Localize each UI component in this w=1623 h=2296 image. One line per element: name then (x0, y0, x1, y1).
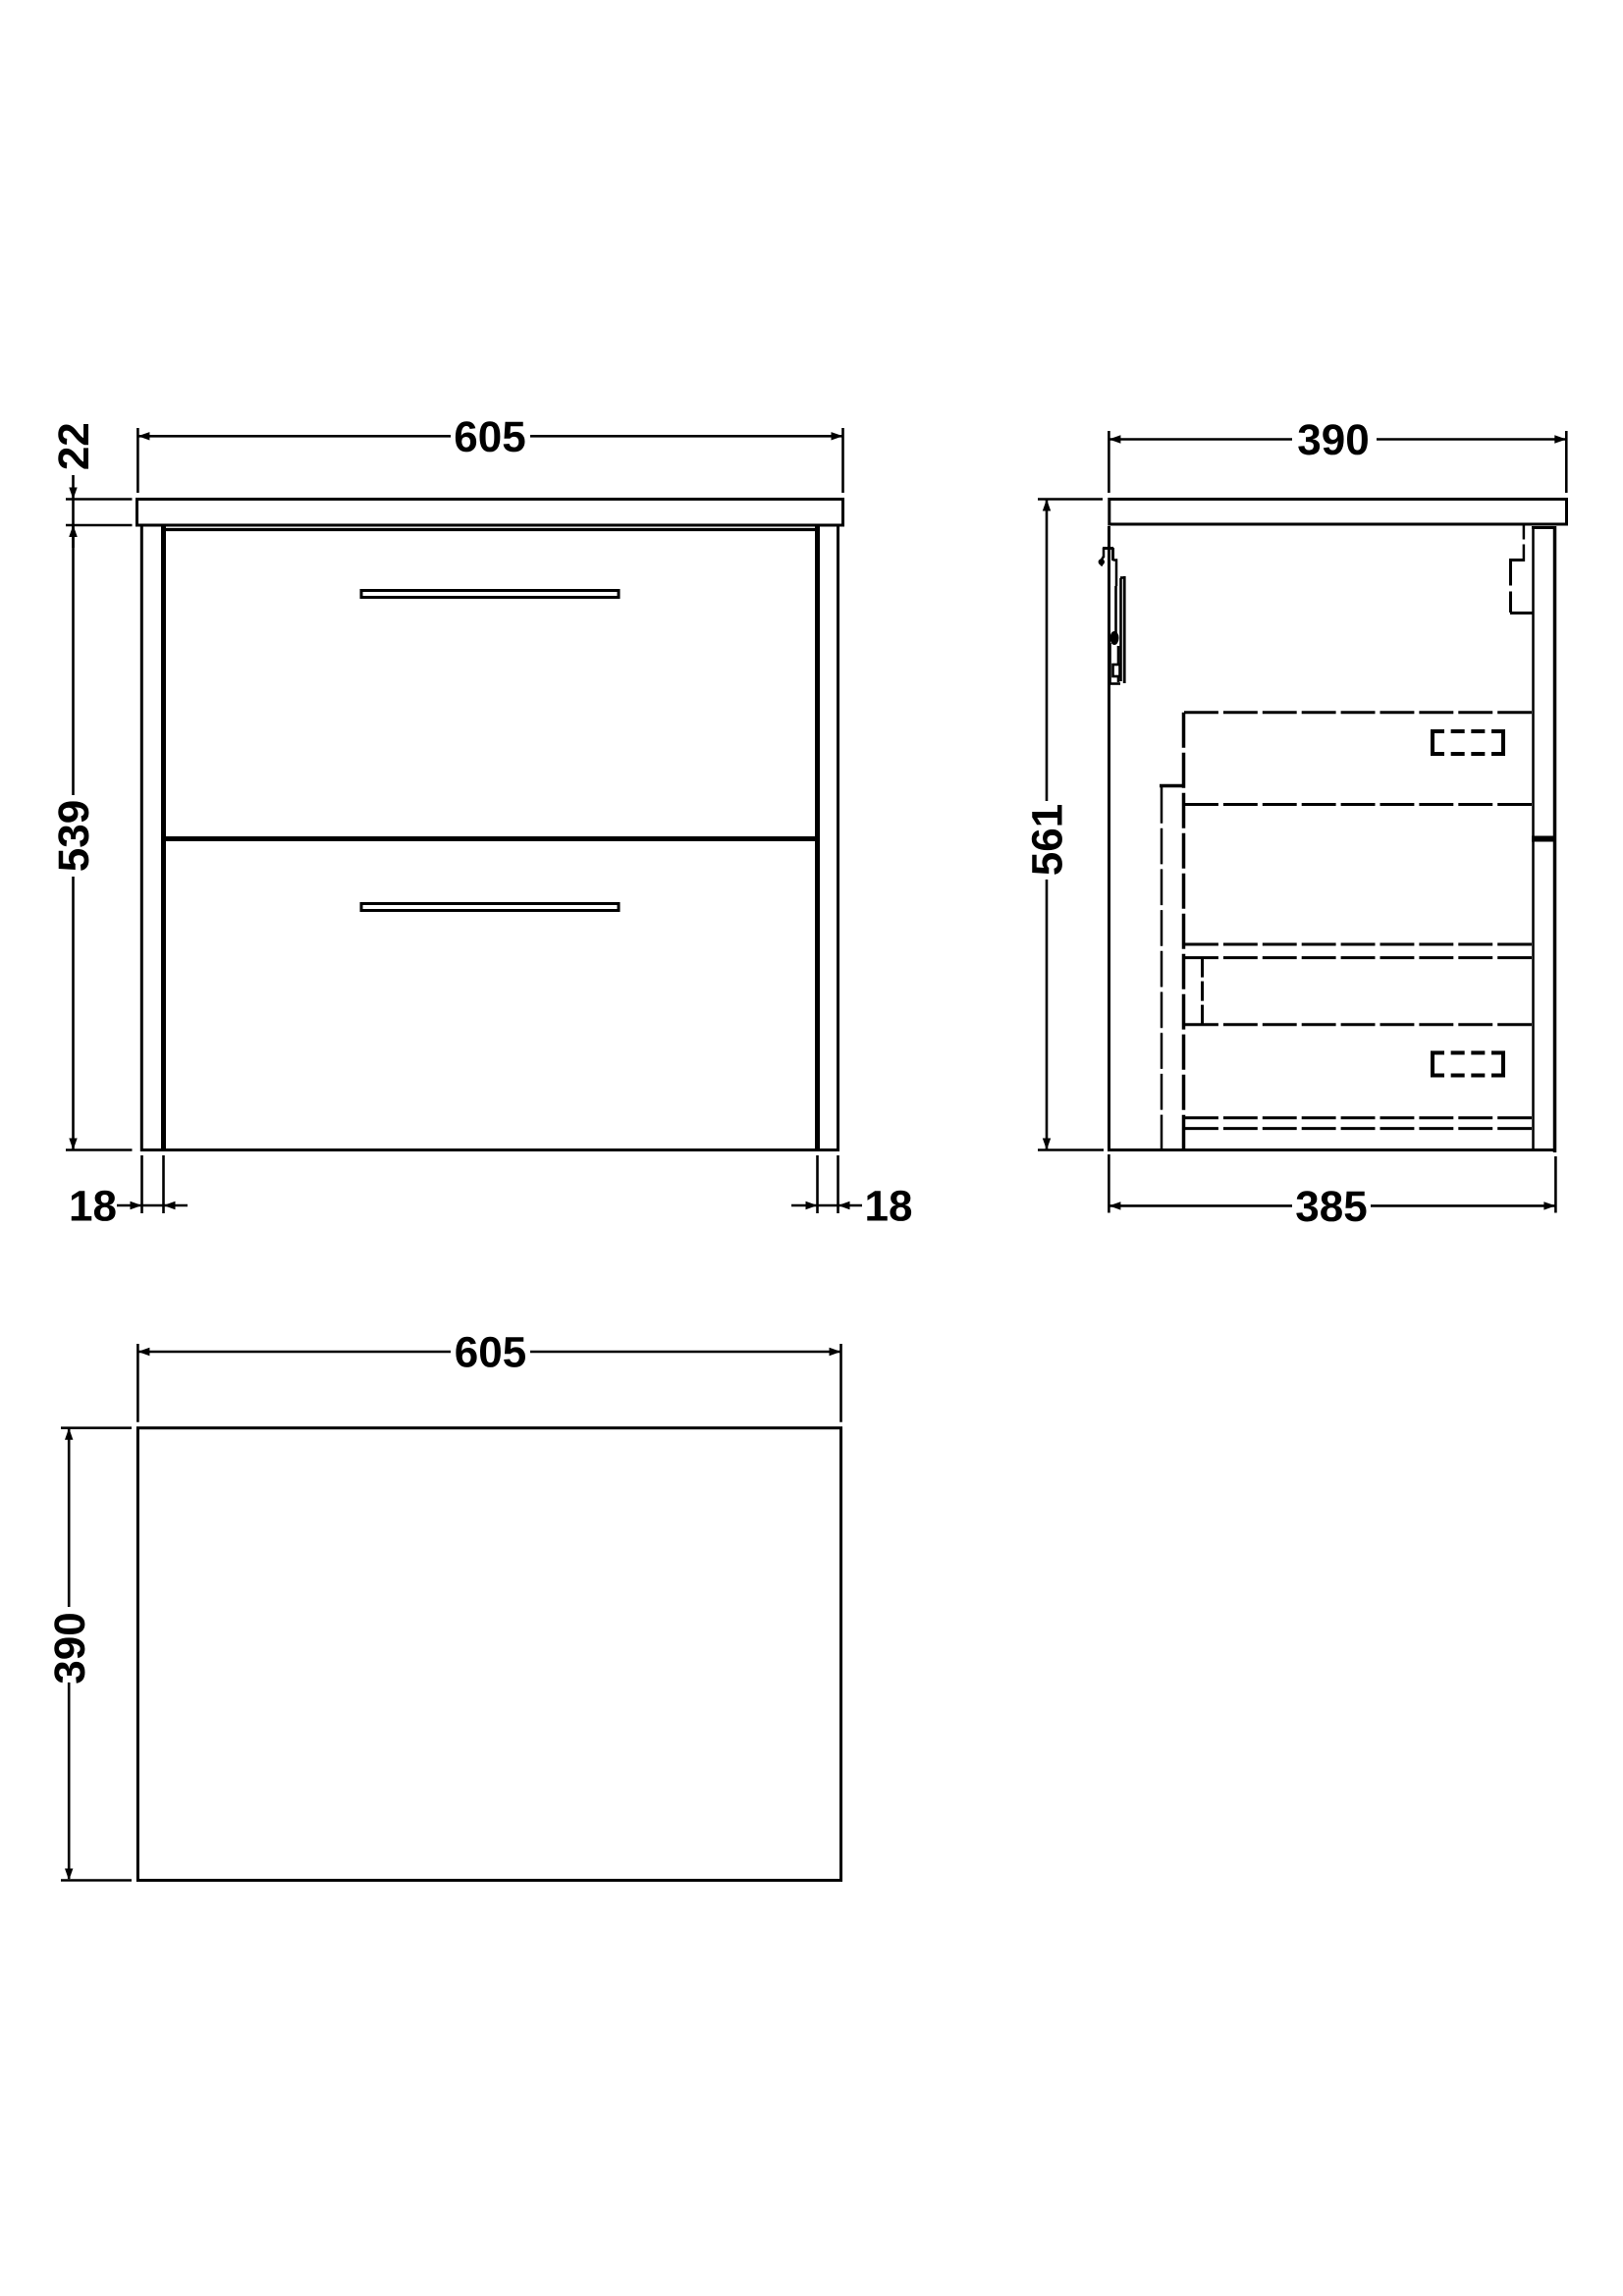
svg-text:605: 605 (454, 413, 525, 461)
svg-text:385: 385 (1295, 1183, 1367, 1231)
svg-text:539: 539 (50, 800, 98, 872)
svg-text:390: 390 (1297, 416, 1369, 464)
svg-text:22: 22 (50, 422, 98, 470)
svg-text:18: 18 (69, 1183, 117, 1231)
svg-text:390: 390 (46, 1612, 94, 1683)
svg-text:561: 561 (1024, 804, 1072, 876)
svg-text:18: 18 (865, 1183, 913, 1231)
svg-text:605: 605 (455, 1329, 526, 1377)
